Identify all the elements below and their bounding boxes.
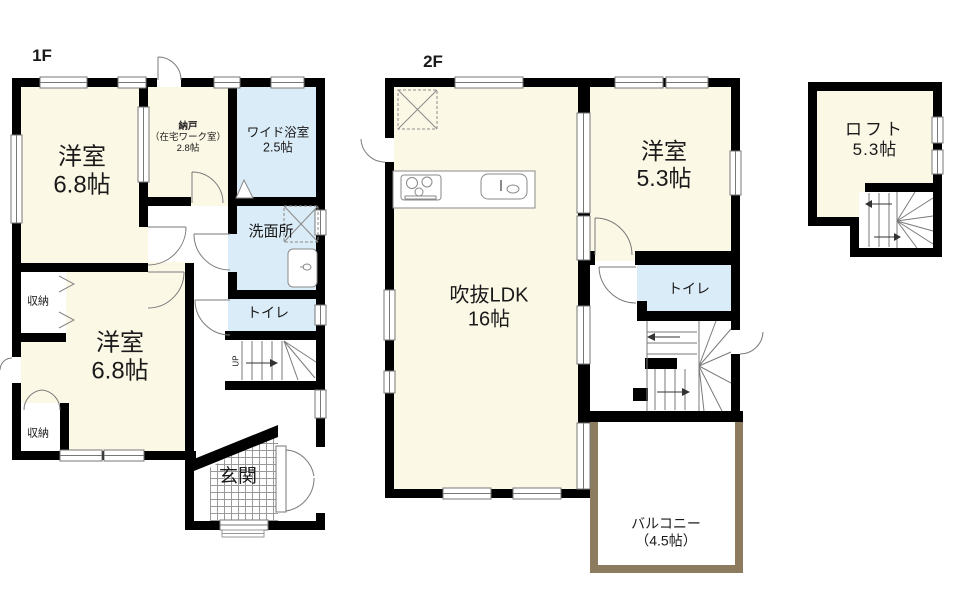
room-label-1f-shuno-upper: 収納 xyxy=(27,296,49,309)
room-label-2f-ldk: 吹抜LDK 16帖 xyxy=(450,284,529,331)
window-icon xyxy=(932,150,943,174)
window-icon xyxy=(615,77,663,88)
window-icon xyxy=(60,450,102,461)
window-icon xyxy=(513,488,561,499)
staircase-loft xyxy=(869,192,933,248)
room-label-1f-shuno-lower: 収納 xyxy=(27,428,49,441)
window-icon xyxy=(384,290,395,340)
window-icon xyxy=(315,305,326,325)
folding-door-icon xyxy=(236,180,253,198)
porch-step xyxy=(222,530,264,537)
vanity-sink-icon xyxy=(288,249,317,287)
entrance-door-icon xyxy=(276,446,314,512)
window-icon xyxy=(384,371,395,393)
room-label-loft: ロフト 5.3帖 xyxy=(845,120,905,160)
stair-arrow xyxy=(647,333,655,341)
stair-arrow xyxy=(270,359,278,367)
window-icon xyxy=(220,520,268,530)
window-icon xyxy=(577,216,590,260)
room-label-1f-toilet: トイレ xyxy=(247,305,289,322)
window-icon xyxy=(455,77,523,88)
stairs-up-label: UP xyxy=(231,355,240,366)
window-icon xyxy=(443,488,491,499)
window-icon xyxy=(118,77,146,88)
floor-plan: 1F 2F 洋室 6.8帖 納戸 （在宅ワーク室） 2.8帖 ワイド浴室 2.5… xyxy=(0,0,977,613)
staircase-1f xyxy=(242,341,316,380)
staircase-2f xyxy=(647,321,731,411)
floor-label-2f: 2F xyxy=(423,52,443,72)
room-label-1f-bath: ワイド浴室 2.5帖 xyxy=(247,125,310,155)
room-label-2f-balcony: バルコニー （4.5帖） xyxy=(631,515,701,548)
window-icon xyxy=(214,77,240,88)
window-icon xyxy=(730,151,741,195)
window-icon xyxy=(577,306,590,364)
room-label-1f-yoshitsu2: 洋室 6.8帖 xyxy=(91,330,148,387)
room-label-2f-yoshitsu: 洋室 5.3帖 xyxy=(637,138,692,192)
window-icon xyxy=(104,450,144,461)
closet-door-icon xyxy=(59,276,74,328)
window-icon xyxy=(666,77,708,88)
stair-arrow xyxy=(682,388,690,396)
inspection-hatch-icon xyxy=(398,90,437,129)
window-icon xyxy=(271,77,304,88)
window-icon xyxy=(315,210,326,235)
room-label-1f-senmenjo: 洗面所 xyxy=(248,223,293,241)
window-icon xyxy=(40,77,87,88)
kitchen-counter xyxy=(393,171,535,208)
window-icon xyxy=(577,423,590,489)
window-icon xyxy=(932,117,943,143)
room-label-2f-toilet: トイレ xyxy=(668,281,710,298)
room-label-1f-genkan: 玄関 xyxy=(219,466,257,488)
window-icon xyxy=(315,390,326,418)
genkan-diagonal-wall xyxy=(194,425,278,471)
window-icon xyxy=(11,135,22,223)
window-icon xyxy=(138,107,149,182)
window-icon xyxy=(577,113,590,213)
room-label-1f-nando: 納戸 （在宅ワーク室） 2.8帖 xyxy=(150,121,226,155)
floor-label-1f: 1F xyxy=(32,46,52,66)
room-label-1f-yoshitsu1: 洋室 6.8帖 xyxy=(53,144,110,201)
